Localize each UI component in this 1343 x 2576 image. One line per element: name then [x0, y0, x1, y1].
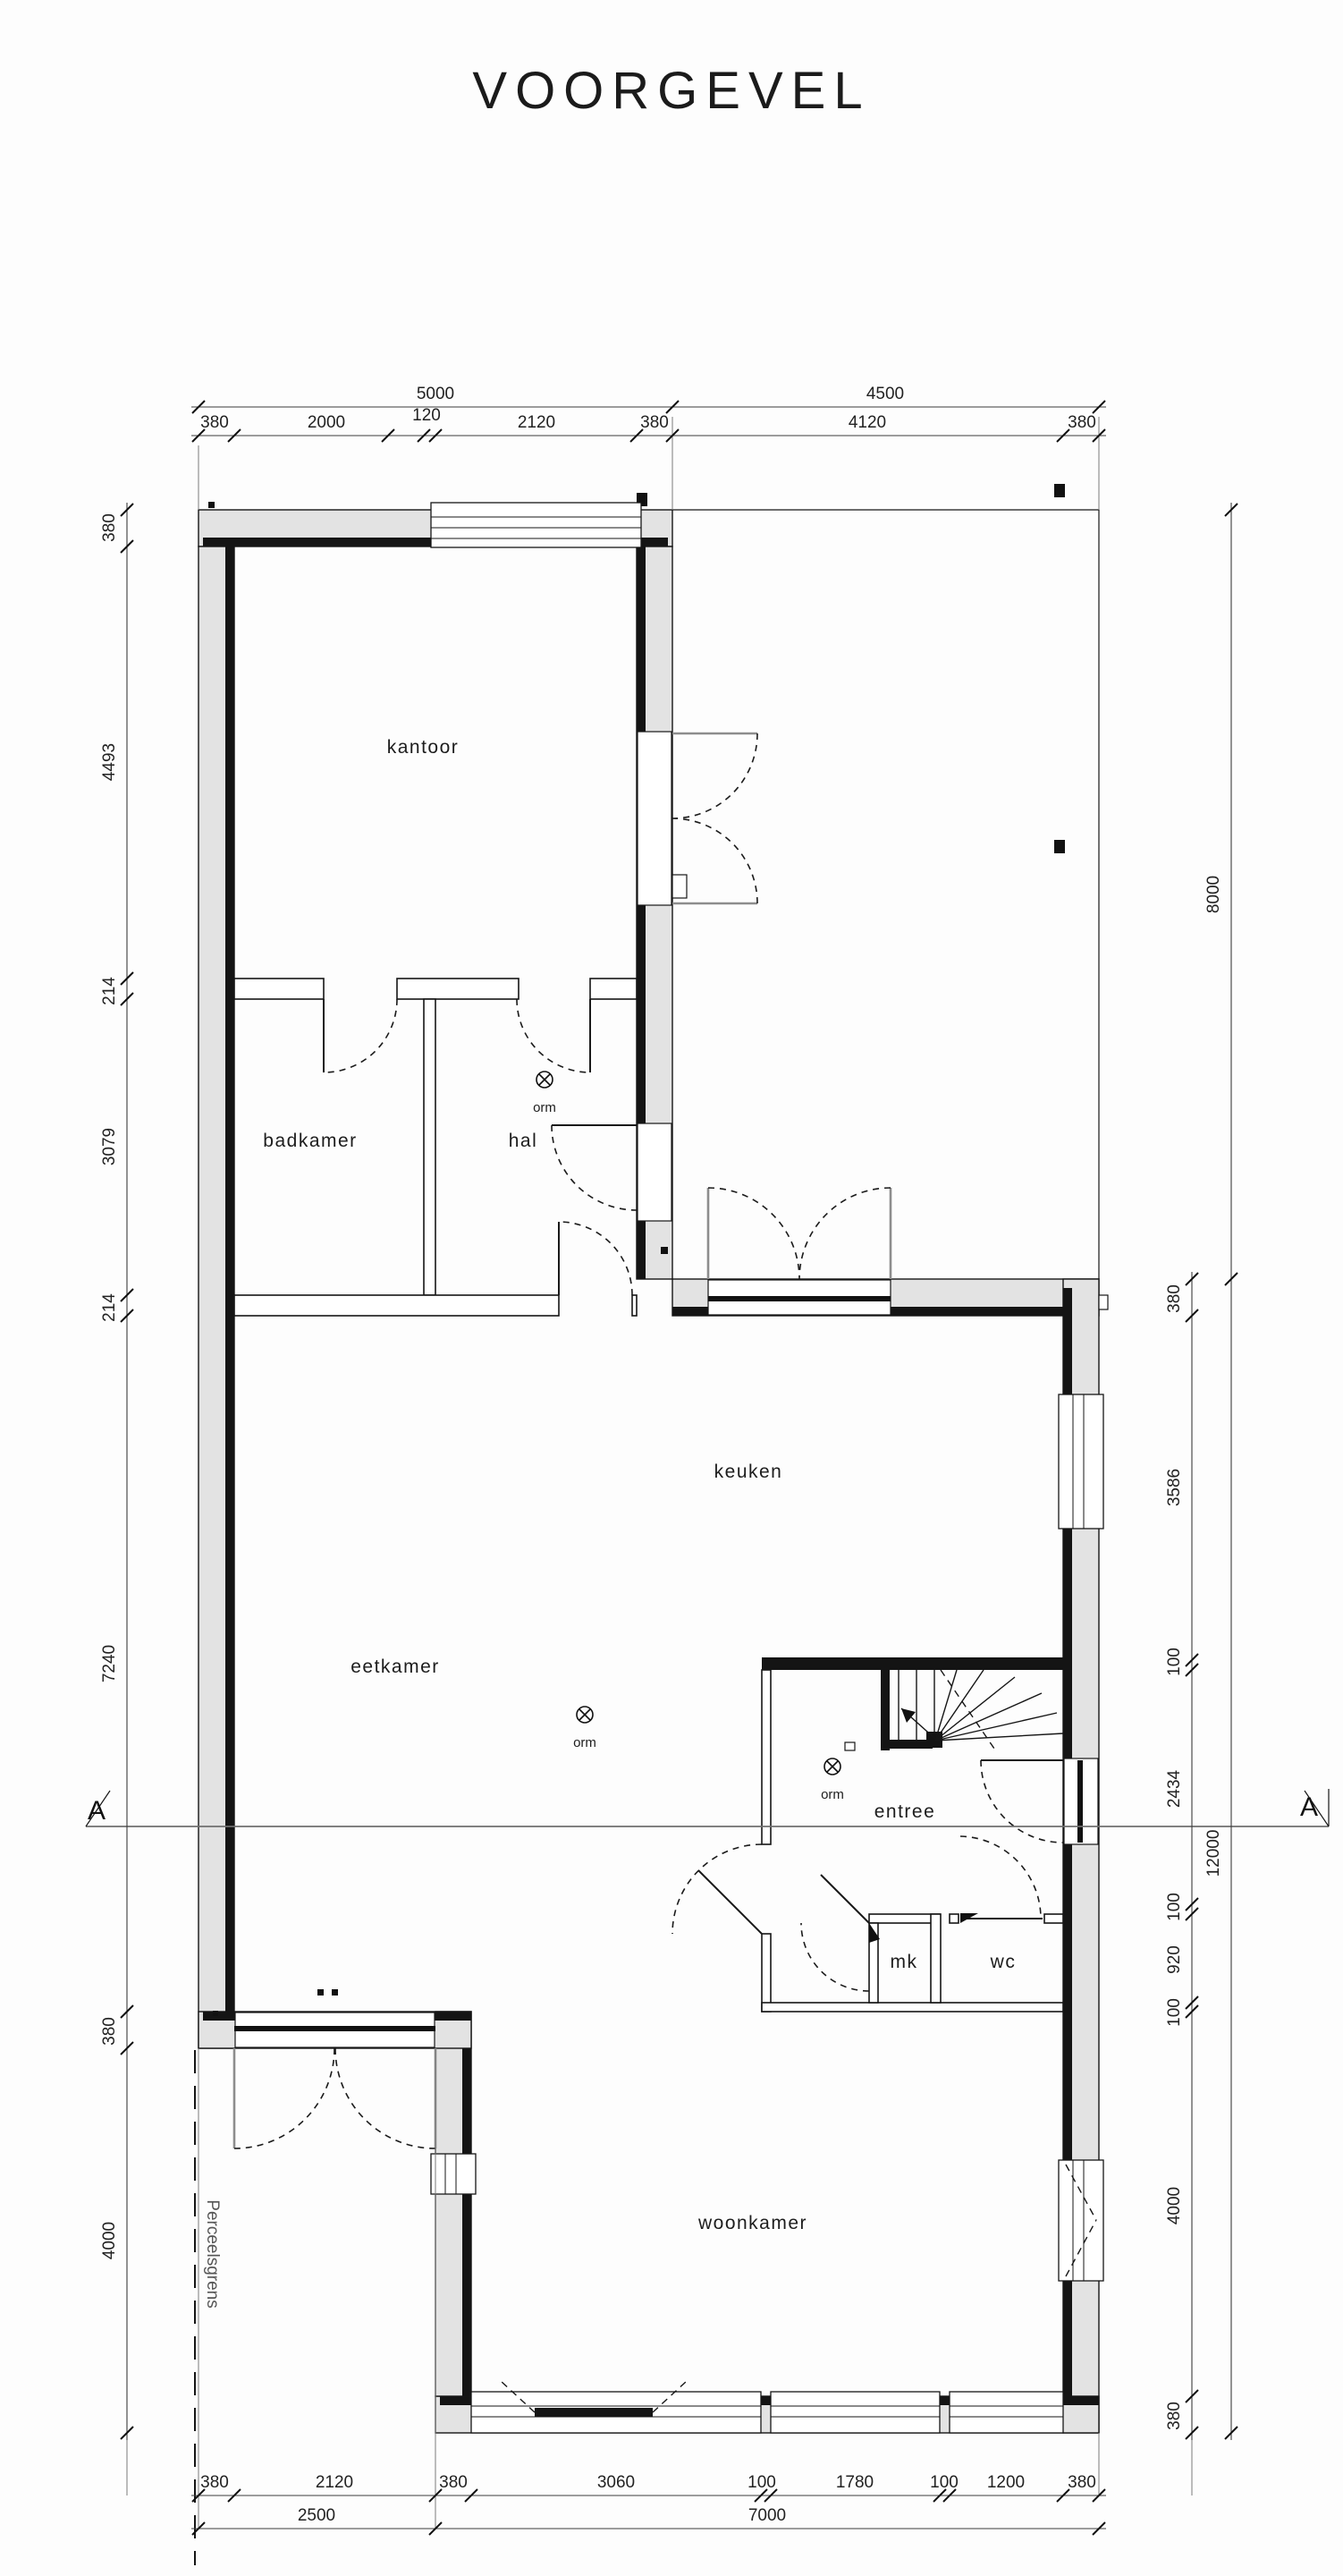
wall-pipe [1099, 1295, 1108, 1309]
entree-top-wall [762, 1657, 1063, 1670]
dim: 5000 [417, 385, 454, 403]
terrace-door-leaf [535, 2408, 653, 2417]
corner-marker [208, 502, 215, 508]
dim: 4000 [1165, 2187, 1184, 2224]
door-stop [672, 875, 687, 898]
boundary-post-icon [1054, 840, 1065, 853]
dim: 3079 [100, 1128, 119, 1165]
wall-markers [213, 1247, 668, 2016]
room-label-wc: wc [990, 1952, 1017, 1972]
front-door [981, 1760, 1063, 1843]
room-label-keuken: keuken [714, 1462, 783, 1482]
dim: 4500 [866, 385, 904, 403]
dim: 2120 [518, 413, 555, 432]
hal-top-door [517, 999, 590, 1072]
woonkamer-right-window [1059, 2160, 1103, 2281]
light-label: orm [533, 1100, 556, 1115]
garden-double-door [234, 2048, 435, 2148]
room-label-woonkamer: woonkamer [697, 2213, 807, 2233]
dim: 380 [100, 513, 119, 542]
dim: 380 [640, 413, 669, 432]
dim: 100 [1165, 1893, 1184, 1921]
dim: 8000 [1204, 876, 1223, 913]
dim: 2500 [298, 2506, 335, 2525]
dim: 380 [100, 2017, 119, 2046]
dim: 380 [1068, 413, 1096, 432]
dim: 380 [439, 2473, 468, 2492]
hal-keuken-door [552, 1125, 637, 1210]
dim: 380 [200, 2473, 229, 2492]
stair-arrow-icon [901, 1708, 916, 1723]
hal-eetkamer-door [559, 1222, 632, 1295]
wc-door [960, 1836, 1043, 1923]
dim: 1200 [987, 2473, 1025, 2492]
light-symbols: orm orm orm [533, 1072, 844, 1802]
dim: 380 [1165, 1284, 1184, 1313]
dim: 920 [1165, 1945, 1184, 1974]
light-eetkamer: orm [573, 1707, 596, 1750]
dim: 100 [1165, 1648, 1184, 1676]
dim: 380 [1068, 2473, 1096, 2492]
light-hal: orm [533, 1072, 556, 1115]
dim: 2120 [316, 2473, 353, 2492]
light-label: orm [821, 1787, 844, 1802]
dim: 120 [412, 406, 441, 425]
entree-passage-door [672, 1844, 762, 1934]
dim: 7240 [100, 1645, 119, 1682]
keuken-right-window [1059, 1394, 1103, 1529]
mk-door [801, 1875, 880, 1991]
dim: 12000 [1204, 1830, 1223, 1877]
section-marker-a-left: A [88, 1796, 106, 1826]
boundary-label: Perceelsgrens [203, 2199, 222, 2308]
room-label-kantoor: kantoor [387, 737, 460, 758]
badkamer-door [324, 999, 397, 1072]
room-label-badkamer: badkamer [263, 1131, 357, 1151]
staircase [845, 1670, 1063, 1750]
dim: 1780 [836, 2473, 874, 2492]
dim: 100 [1165, 1998, 1184, 2027]
dim: 7000 [748, 2506, 786, 2525]
dim: 4493 [100, 743, 119, 781]
dim: 4000 [100, 2222, 119, 2259]
entrance-double-door [708, 1188, 891, 1279]
dim: 100 [748, 2473, 776, 2492]
light-entree: orm [821, 1758, 844, 1802]
kantoor-top-window [431, 503, 641, 547]
dim: 214 [100, 977, 119, 1005]
dim: 100 [930, 2473, 959, 2492]
room-label-entree: entree [874, 1801, 936, 1822]
section-line: A A [86, 1789, 1329, 1826]
woonkamer-left-window [431, 2154, 476, 2194]
room-label-hal: hal [509, 1131, 538, 1151]
dim: 3586 [1165, 1469, 1184, 1506]
dim: 2000 [308, 413, 345, 432]
dim: 214 [100, 1293, 119, 1322]
boundary-post-icon [1054, 484, 1065, 497]
dim: 380 [200, 413, 229, 432]
section-marker-a-right: A [1300, 1792, 1318, 1822]
dim: 380 [1165, 2402, 1184, 2430]
floor-plan-canvas: orm orm orm A A Perceelsgrens kantoor ba… [0, 0, 1343, 2576]
dim: 2434 [1165, 1769, 1184, 1808]
room-label-mk: mk [891, 1952, 918, 1972]
room-label-eetkamer: eetkamer [351, 1657, 440, 1677]
light-label: orm [573, 1735, 596, 1750]
floor-point [845, 1742, 855, 1750]
dim: 3060 [597, 2473, 635, 2492]
floorplan-page: { "title": "VOORGEVEL", "rooms": { "kant… [0, 0, 1343, 2576]
dim: 4120 [849, 413, 886, 432]
